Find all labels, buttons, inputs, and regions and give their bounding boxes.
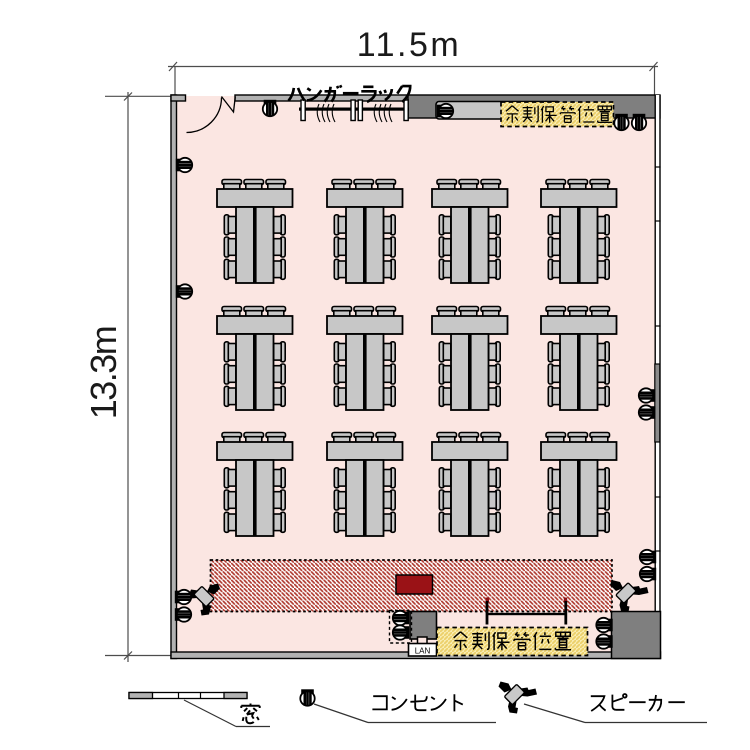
- svg-text:13.3m: 13.3m: [83, 327, 124, 420]
- svg-text:LAN: LAN: [415, 647, 431, 656]
- svg-text:11.5m: 11.5m: [357, 26, 461, 64]
